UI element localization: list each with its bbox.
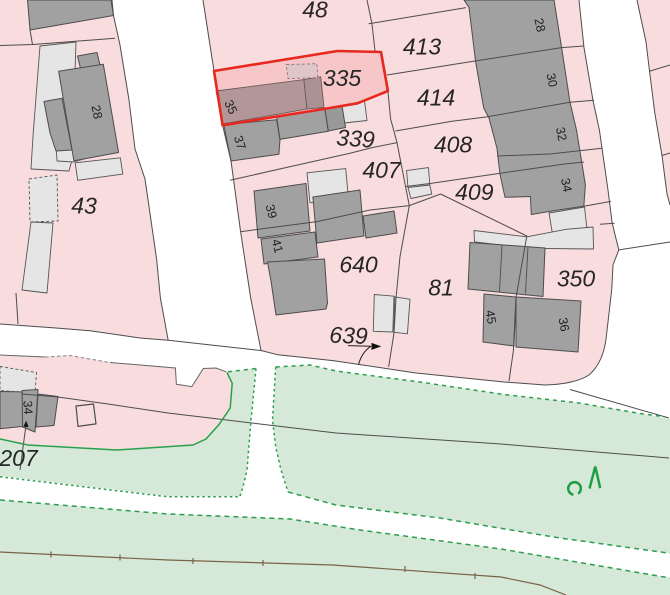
svg-text:640: 640	[339, 252, 378, 278]
svg-text:28: 28	[88, 104, 105, 121]
svg-text:48: 48	[302, 0, 328, 23]
svg-text:413: 413	[403, 34, 442, 60]
svg-text:43: 43	[71, 192, 97, 218]
svg-text:30: 30	[543, 72, 560, 89]
svg-text:409: 409	[455, 179, 494, 205]
svg-text:32: 32	[553, 126, 570, 143]
svg-text:81: 81	[428, 274, 454, 300]
svg-text:414: 414	[417, 85, 455, 111]
svg-text:335: 335	[323, 65, 362, 91]
svg-text:407: 407	[362, 157, 402, 183]
svg-text:339: 339	[335, 124, 375, 153]
svg-text:36: 36	[556, 316, 572, 332]
svg-text:34: 34	[20, 400, 35, 415]
svg-text:350: 350	[557, 265, 596, 291]
svg-text:34: 34	[558, 177, 575, 194]
svg-text:28: 28	[531, 17, 548, 34]
svg-text:408: 408	[434, 132, 473, 158]
svg-text:207: 207	[0, 445, 39, 471]
svg-text:45: 45	[483, 309, 499, 325]
svg-text:639: 639	[329, 322, 368, 349]
